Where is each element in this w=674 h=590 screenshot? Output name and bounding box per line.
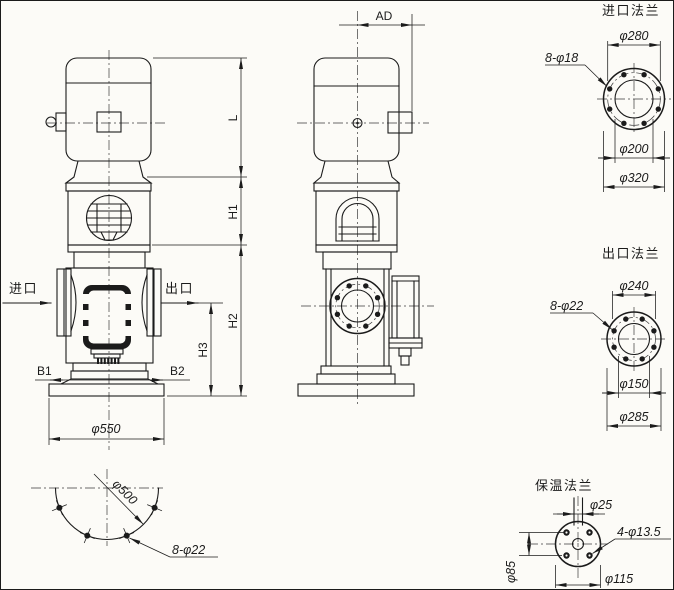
relief-valve [389, 276, 422, 365]
coupling-housing-front [66, 161, 151, 268]
svg-text:φ240: φ240 [619, 279, 648, 293]
coupling-housing-side [314, 161, 399, 269]
callout-insulation-holes: 4-φ13.5 [593, 525, 672, 554]
insulation-flange-detail: 保温法兰 φ25 4-φ13.5 φ85 [504, 478, 671, 588]
svg-text:φ320: φ320 [619, 171, 648, 185]
svg-text:φ150: φ150 [619, 377, 648, 391]
motor-front [46, 58, 151, 161]
svg-text:φ200: φ200 [619, 142, 648, 156]
svg-text:4-φ13.5: 4-φ13.5 [617, 525, 661, 539]
terminal-box [388, 112, 412, 133]
svg-text:8-φ18: 8-φ18 [545, 51, 578, 65]
side-view: AD [297, 9, 434, 407]
outlet-port-flange [142, 269, 161, 336]
dim-ad: AD [339, 9, 425, 111]
callout-outlet-holes: 8-φ22 [550, 299, 612, 330]
dim-base-diameter-label: φ550 [91, 422, 120, 436]
dim-inlet-outer: φ320 [604, 131, 665, 192]
svg-text:φ85: φ85 [504, 561, 518, 583]
base-plate-side [298, 366, 414, 396]
outlet-label: 出口 [165, 281, 194, 296]
inlet-flange-detail: 进口法兰 φ280 8-φ18 φ200 [545, 3, 671, 192]
outlet-flange-detail: 出口法兰 φ240 8-φ22 φ150 [550, 246, 667, 431]
inlet-flange-title: 进口法兰 [602, 3, 660, 18]
inlet-label: 进口 [9, 281, 38, 296]
base-plate-front [49, 363, 164, 396]
dim-ad-label: AD [376, 9, 393, 23]
callout-foundation-holes: 8-φ22 [130, 538, 219, 557]
dim-b2-label: B2 [170, 364, 185, 378]
dim-h2-label: H2 [226, 313, 240, 329]
screw-cartridge [83, 285, 132, 364]
dim-inlet-bolt-circle: φ280 [608, 29, 661, 81]
svg-text:8-φ22: 8-φ22 [172, 543, 205, 557]
dim-l-label: L [226, 114, 240, 121]
dim-insulation-bolt-spacing: φ85 [504, 533, 564, 584]
dim-foundation-bolt-circle: φ500 [94, 474, 143, 524]
callout-inlet-holes: 8-φ18 [545, 51, 607, 87]
pump-dimension-drawing: 进口 出口 B1 B2 φ550 [0, 0, 674, 590]
pump-body-side [298, 269, 422, 396]
dim-h1-label: H1 [226, 204, 240, 220]
outlet-flange-title: 出口法兰 [602, 246, 660, 261]
foundation-bolt-detail: φ500 8-φ22 [31, 469, 218, 557]
dim-base-diameter: φ550 [49, 398, 164, 445]
dim-h3-label: H3 [196, 342, 210, 358]
svg-text:φ280: φ280 [619, 29, 648, 43]
front-view: 进口 出口 B1 B2 φ550 [3, 50, 247, 450]
svg-text:φ115: φ115 [605, 572, 633, 586]
svg-text:8-φ22: 8-φ22 [550, 299, 583, 313]
svg-text:φ285: φ285 [619, 410, 648, 424]
grease-fitting [46, 117, 56, 127]
dim-b1-b2: B1 B2 [35, 364, 190, 380]
drawing-canvas: 进口 出口 B1 B2 φ550 [1, 1, 673, 589]
insulation-flange-title: 保温法兰 [535, 478, 593, 493]
svg-text:φ25: φ25 [590, 498, 612, 512]
dim-height-stack: L H1 H2 H3 [147, 58, 247, 396]
motor-side [314, 58, 412, 161]
dim-insulation-outer: φ115 [556, 565, 634, 588]
svg-text:φ500: φ500 [110, 477, 140, 507]
pump-casing-front [49, 268, 164, 396]
dim-b1-label: B1 [37, 364, 52, 378]
